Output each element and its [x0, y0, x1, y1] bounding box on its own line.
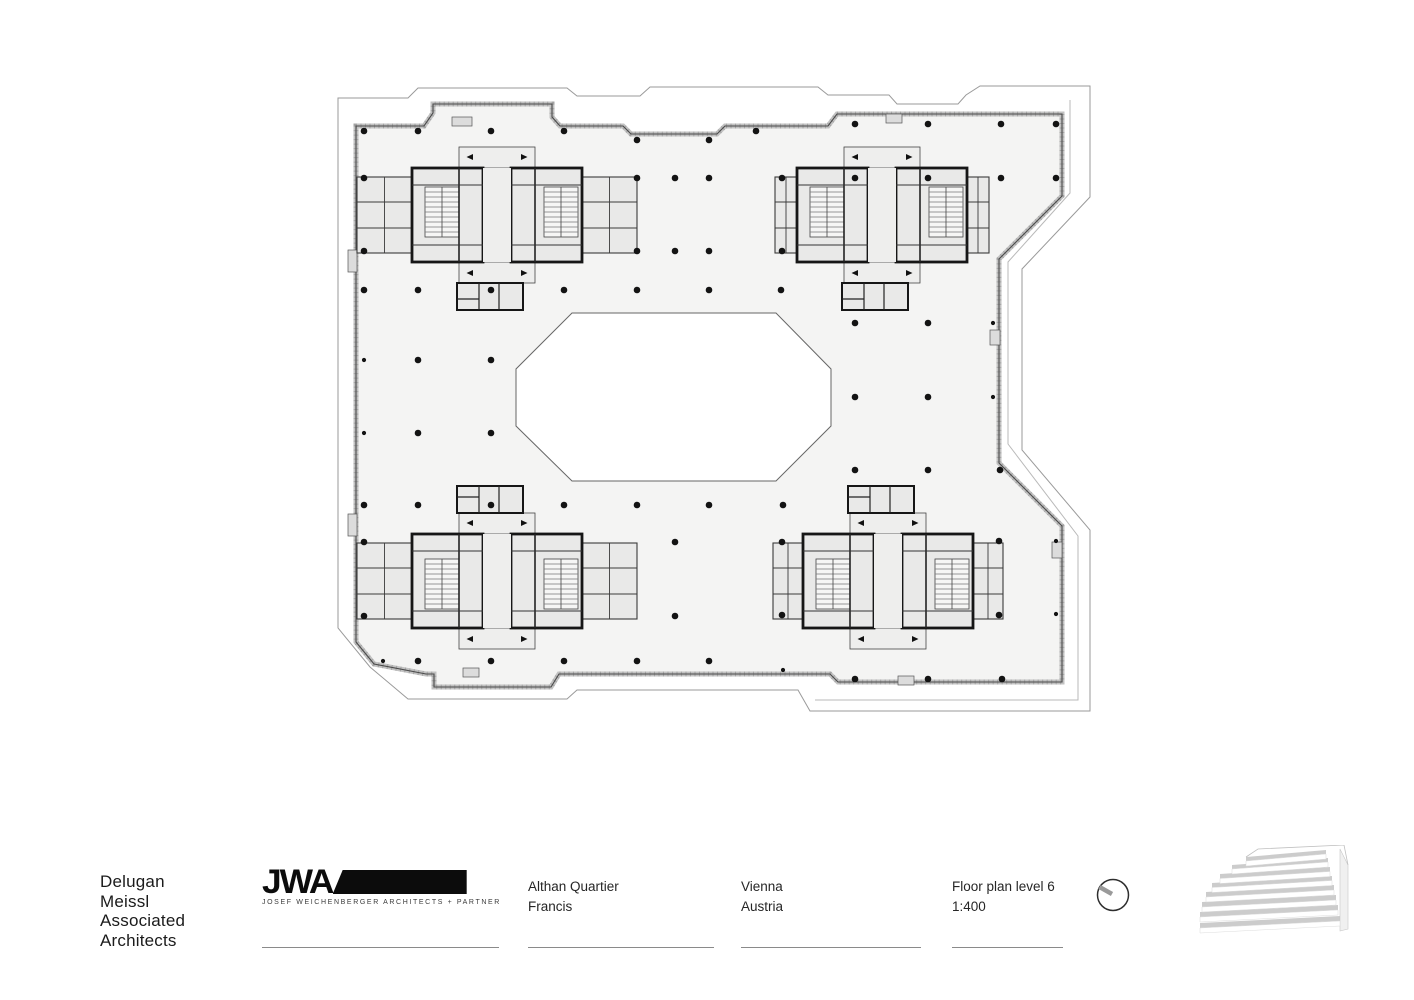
- divider-line: [952, 947, 1063, 948]
- location-country: Austria: [741, 897, 783, 917]
- location-block: Vienna Austria: [741, 877, 783, 917]
- divider-line: [741, 947, 921, 948]
- divider-line: [528, 947, 714, 948]
- firm-name: Delugan Meissl Associated Architects: [100, 872, 185, 950]
- jwa-logo: JWA JOSEF WEICHENBERGER ARCHITECTS + PAR…: [262, 869, 502, 906]
- firm-line: Associated: [100, 911, 185, 931]
- sheet-info-block: Floor plan level 6 1:400: [952, 877, 1055, 917]
- firm-line: Meissl: [100, 892, 185, 912]
- sheet-title: Floor plan level 6: [952, 877, 1055, 897]
- sheet-scale: 1:400: [952, 897, 1055, 917]
- building-axonometric-icon: [1198, 845, 1350, 935]
- north-indicator-icon: [1096, 878, 1130, 912]
- location-city: Vienna: [741, 877, 783, 897]
- divider-line: [262, 947, 499, 948]
- firm-line: Architects: [100, 931, 185, 951]
- jwa-logo-letters: JWA: [262, 869, 332, 896]
- project-title-block: Althan Quartier Francis: [528, 877, 619, 917]
- drawing-sheet: Delugan Meissl Associated Architects JWA…: [0, 0, 1414, 1000]
- project-name: Althan Quartier: [528, 877, 619, 897]
- jwa-logo-bar: [333, 870, 467, 894]
- firm-line: Delugan: [100, 872, 185, 892]
- project-phase: Francis: [528, 897, 619, 917]
